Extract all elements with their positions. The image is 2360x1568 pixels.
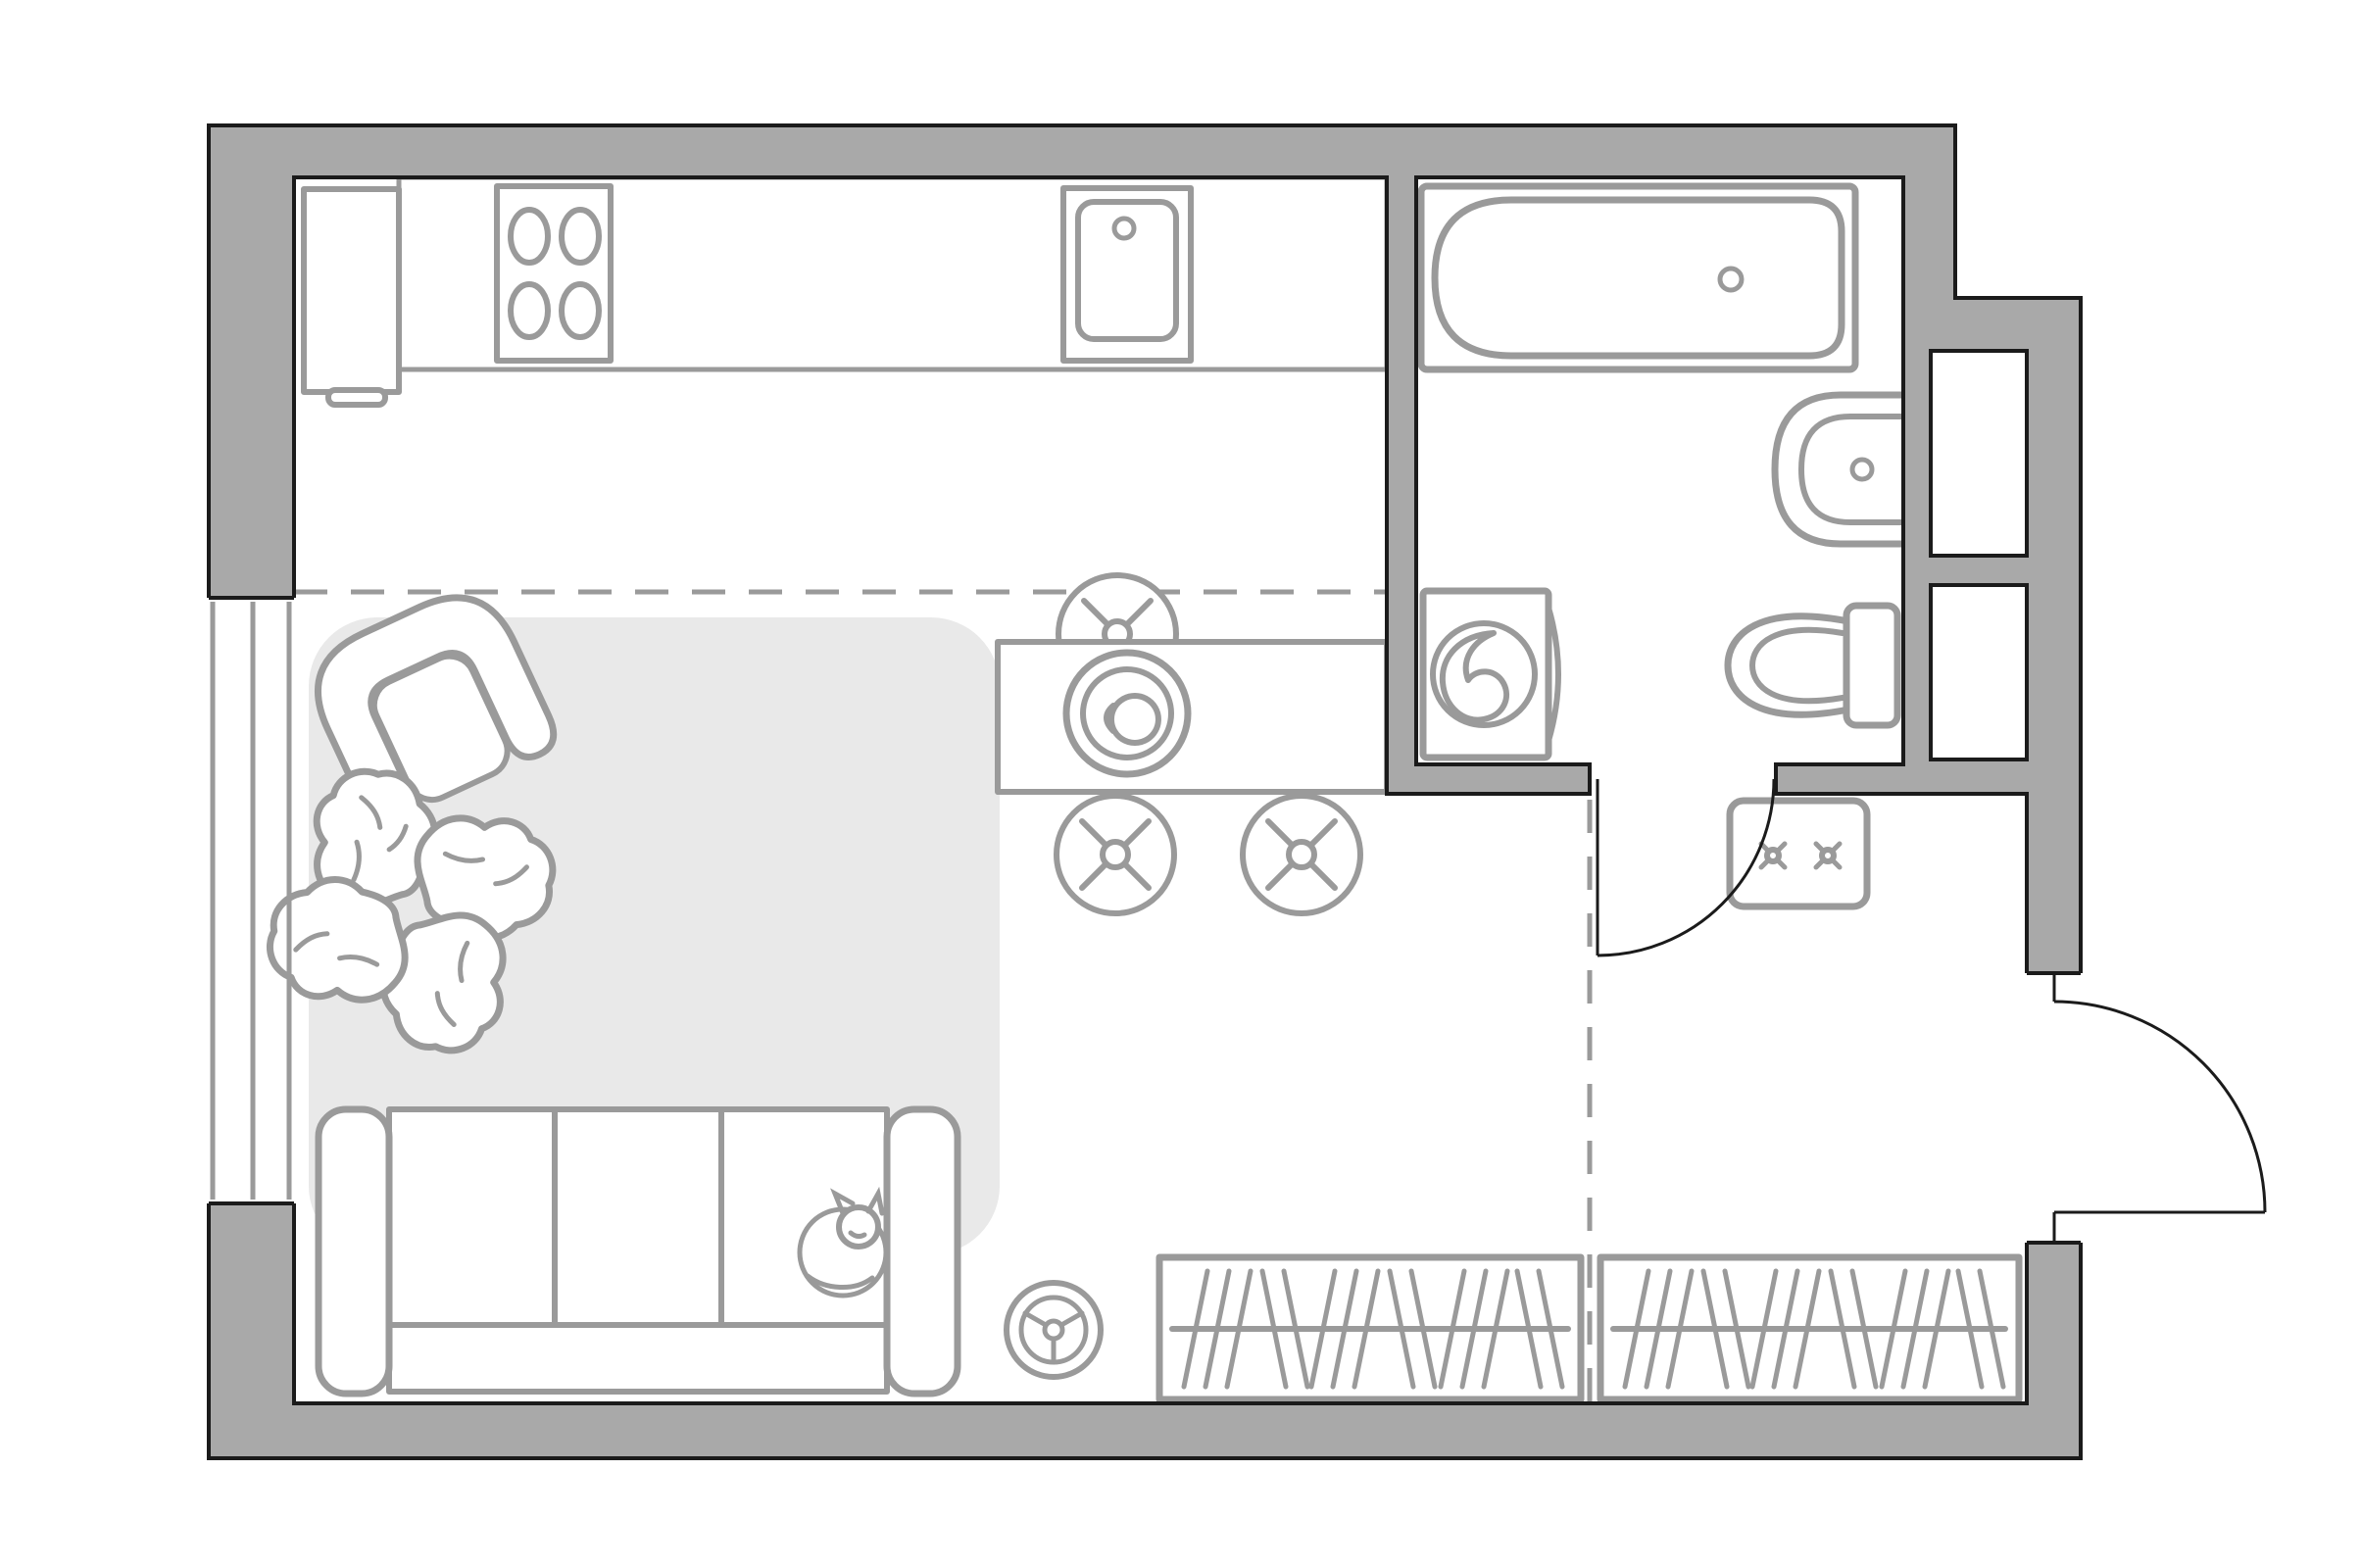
fridge [304,189,399,405]
floor-plan-canvas [0,0,2360,1568]
stove [497,186,611,361]
washing-machine [1423,591,1558,758]
cup [1111,696,1158,743]
entry-door [2054,973,2265,1243]
kitchen-sink [1063,188,1191,361]
wardrobe-left [1159,1257,1581,1399]
shaft-upper [1931,351,2027,556]
toilet-tank [1846,606,1897,725]
door-arc [2054,1002,2265,1212]
toilet [1728,606,1897,725]
shaft-lower [1931,585,2027,759]
dining-chair [1057,796,1174,913]
floor-plan-svg [0,0,2360,1568]
shoe-cabinet [1730,801,1867,906]
sofa-armrest [319,1109,389,1394]
wall-divider [1387,177,1416,794]
bathtub [1421,186,1855,369]
sofa [319,1109,958,1394]
dining-chair [1243,796,1360,913]
bathroom-sink [1775,395,1901,544]
utility-shafts [1931,351,2027,759]
sofa-body [389,1109,887,1392]
fridge-handle [328,390,385,405]
fan [1007,1283,1101,1377]
dining-table [998,642,1387,792]
wardrobe-right [1600,1257,2019,1399]
sofa-armrest [887,1109,958,1394]
window [213,602,289,1200]
